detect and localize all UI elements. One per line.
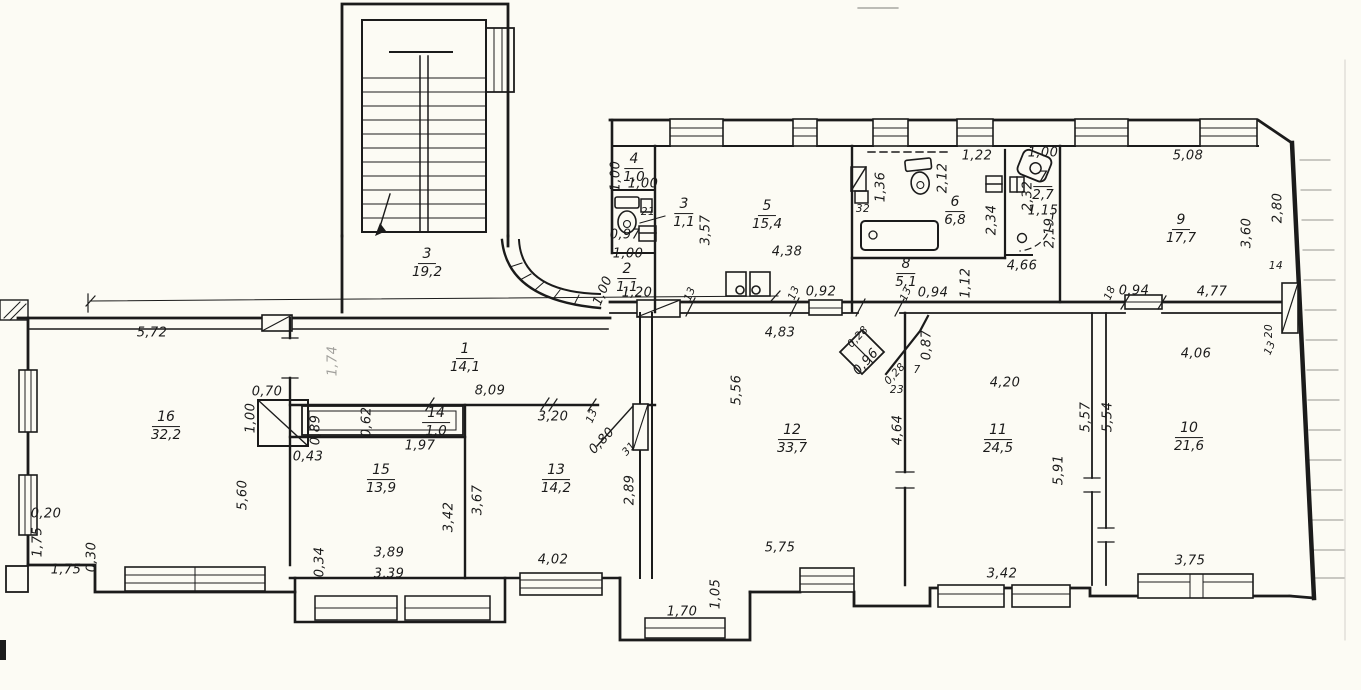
dim-label: 0,97 — [610, 228, 641, 243]
dim-label: 5,57 — [1079, 402, 1094, 433]
dim-label: 23 — [890, 384, 904, 396]
dim-label: 4,38 — [772, 245, 803, 260]
dim-label: 5,08 — [1173, 149, 1204, 164]
dim-label: 0,43 — [293, 450, 324, 465]
room-label-14: 141,0 — [422, 404, 450, 438]
dim-label: 8,09 — [475, 384, 506, 399]
room-label-15: 1513,9 — [366, 461, 396, 495]
room-label-9: 917,7 — [1166, 211, 1196, 245]
dim-label: 1,75 — [51, 563, 82, 578]
floorplan-scan: 319,2 114,1 21,1 31,1 41,0 515,4 66,8 72… — [0, 0, 1361, 690]
dim-label: 1,36 — [874, 172, 889, 203]
plan-drawing — [0, 0, 1361, 690]
dim-label: 4,06 — [1181, 347, 1212, 362]
dim-label: 2,80 — [1271, 193, 1286, 224]
flue-icon — [258, 400, 308, 446]
room-label-1: 114,1 — [450, 340, 480, 374]
dim-label: 1,75 — [31, 527, 46, 558]
dim-label: 1,00 — [613, 247, 644, 262]
dim-label: 0,70 — [252, 385, 283, 400]
room-label-16: 1632,2 — [151, 408, 181, 442]
room-label-12: 1233,7 — [777, 421, 807, 455]
dim-label: 1,12 — [959, 268, 974, 299]
dim-label: 5,60 — [236, 480, 251, 511]
dim-label: 0.94 — [1119, 284, 1150, 299]
bathtub-icon — [861, 221, 938, 250]
dim-label: 1,00 — [609, 161, 624, 192]
dim-label: 1,70 — [667, 605, 698, 620]
room-label-13: 1314,2 — [541, 461, 571, 495]
dim-label: 4,66 — [1007, 259, 1038, 274]
dim-label: 3,57 — [699, 215, 714, 246]
dim-label: 5,75 — [765, 541, 796, 556]
dim-label: 1,05 — [709, 579, 724, 610]
dim-label: 0,92 — [806, 285, 837, 300]
dim-label: 0,87 — [920, 330, 935, 361]
dim-label: 1,20 — [622, 286, 653, 301]
dim-label: 1,15 — [1028, 204, 1059, 219]
room-label-3-wc: 31,1 — [673, 195, 694, 229]
toilet-icon — [905, 158, 935, 196]
scan-blot — [0, 640, 6, 660]
dim-label: 3,42 — [987, 567, 1018, 582]
dim-label: 3,20 — [538, 410, 569, 425]
dim-label: 4,02 — [538, 553, 569, 568]
dim-label: 2,19 — [1043, 218, 1058, 249]
dim-label: 0,89 — [309, 415, 324, 446]
dim-label: 3,89 — [374, 546, 405, 561]
dim-label: 1,00 — [628, 177, 659, 192]
stove-icon — [726, 272, 770, 296]
dim-label: 3,42 — [442, 502, 457, 533]
dim-label: 2,89 — [623, 475, 638, 506]
dim-label: 14 — [1269, 260, 1283, 272]
dim-label: 5,91 — [1052, 455, 1067, 486]
dim-label: 1,00 — [1028, 146, 1059, 161]
dim-label: 3,39 — [374, 567, 405, 582]
vent-shaft-icon — [851, 167, 868, 203]
room-label-8: 85,1 — [895, 255, 916, 289]
dim-label: 4,83 — [765, 326, 796, 341]
dim-label: 3,60 — [1240, 218, 1255, 249]
dim-label: 21 — [641, 206, 655, 218]
dim-label: 3,75 — [1175, 554, 1206, 569]
room-label-3-stairwell: 319,2 — [412, 245, 442, 279]
window-icon — [670, 119, 1257, 146]
dim-label: 20 — [1263, 324, 1275, 338]
dim-label: 0,62 — [360, 407, 375, 438]
dim-label: 4,64 — [891, 415, 906, 446]
dim-label: 1,74 — [326, 346, 341, 377]
dim-label: 1,22 — [962, 149, 993, 164]
dim-label: 4,77 — [1197, 285, 1228, 300]
dim-label: 2,12 — [936, 163, 951, 194]
dim-label: 5,56 — [730, 375, 745, 406]
dim-label: 32 — [856, 203, 870, 215]
room-label-10: 1021,6 — [1174, 419, 1204, 453]
dim-label: 0,34 — [313, 547, 328, 578]
room-label-6: 66,8 — [944, 193, 965, 227]
dim-label: 5,54 — [1101, 402, 1116, 433]
room-label-5: 515,4 — [752, 197, 782, 231]
dim-label: 3,67 — [471, 485, 486, 516]
dim-label: 4,20 — [990, 376, 1021, 391]
dim-label: 1,00 — [244, 403, 259, 434]
dim-label: 0,30 — [85, 542, 100, 573]
dim-label: 0,94 — [918, 286, 949, 301]
dim-label: 1,97 — [405, 439, 436, 454]
dim-label: 2,34 — [985, 205, 1000, 236]
dim-label: 5,72 — [137, 326, 168, 341]
dim-label: 0,20 — [31, 507, 62, 522]
dim-label: 7 — [913, 364, 920, 376]
room-label-11: 1124,5 — [983, 421, 1013, 455]
